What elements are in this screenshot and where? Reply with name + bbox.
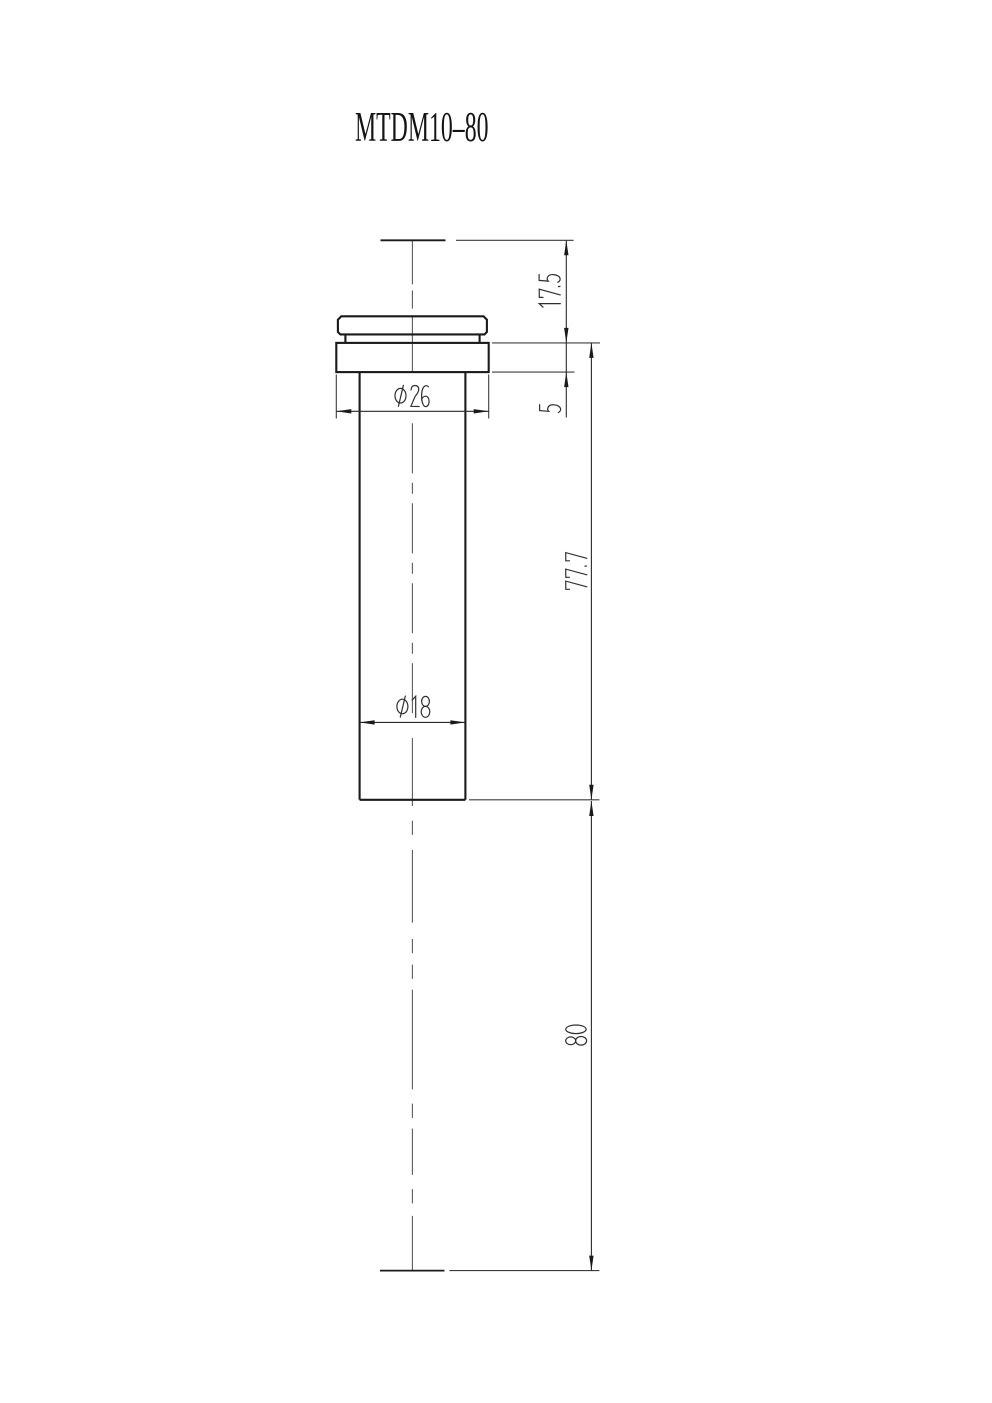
svg-text:MTDM10–80: MTDM10–80 <box>355 104 489 151</box>
